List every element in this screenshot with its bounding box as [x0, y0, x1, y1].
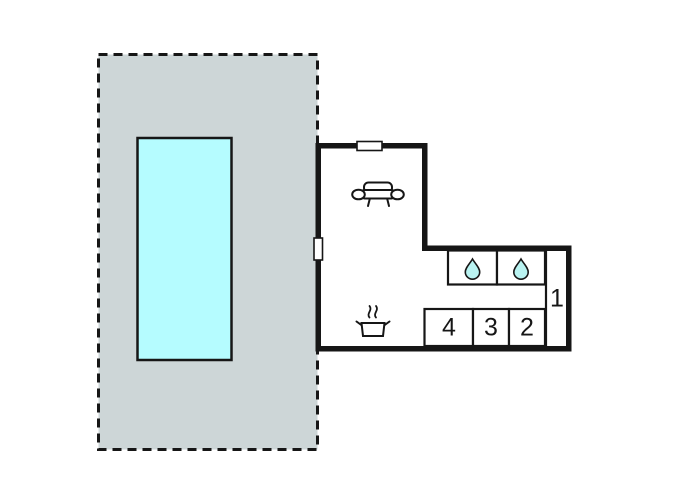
room-4-label: 4 — [442, 316, 456, 341]
sofa-icon — [352, 183, 404, 207]
stove-pot-icon — [357, 306, 390, 336]
room-2-label: 2 — [520, 316, 534, 341]
window-top-icon — [357, 142, 382, 151]
floorplan-drawing — [0, 0, 700, 500]
room-3-label: 3 — [484, 316, 498, 341]
room-1-label: 1 — [550, 287, 564, 312]
swimming-pool — [138, 138, 232, 360]
window-left-icon — [314, 238, 323, 260]
floorplan-canvas: 1 4 3 2 — [0, 0, 700, 500]
